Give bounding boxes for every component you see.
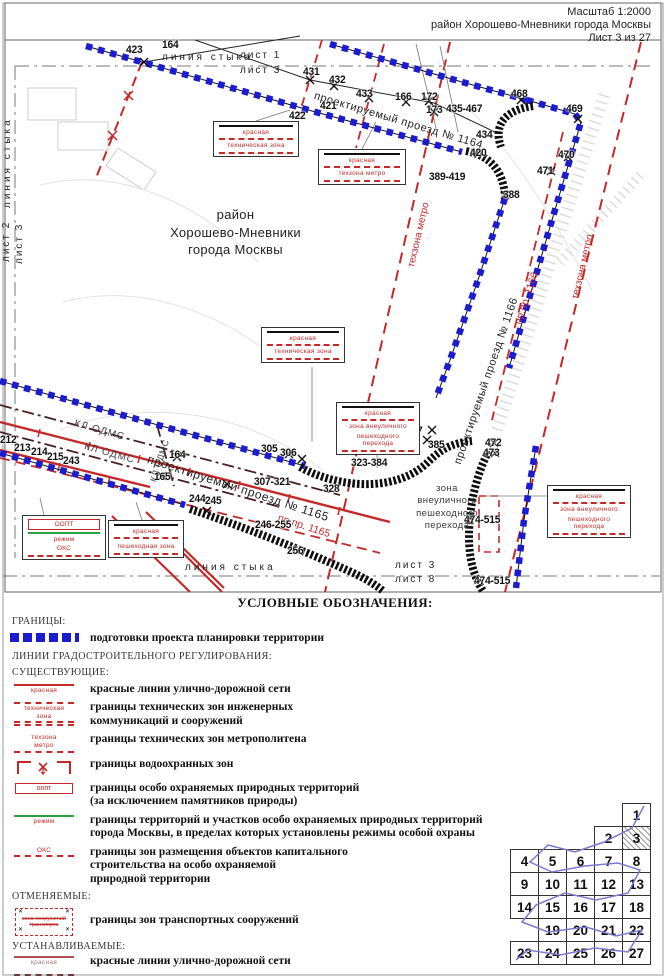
- red-line-sample: [219, 125, 293, 127]
- kl-odms-label-1: КЛ ОДМС: [73, 418, 126, 443]
- street-label-1165: проектируемый проезд № 1165: [146, 452, 331, 524]
- point-label: 215: [47, 451, 64, 463]
- point-label: 245: [205, 495, 222, 507]
- grid-cell: 1: [622, 803, 651, 827]
- legend-item-metro-zones: техзона метро границы технических зон ме…: [12, 732, 660, 752]
- rezhim-line-sample: [28, 532, 100, 534]
- legend-item-underpass-zones: зона внеуличного пешеходного перехода гр…: [12, 972, 660, 978]
- point-label: 431: [303, 66, 320, 78]
- point-label: 243: [63, 455, 80, 467]
- grid-cell: 18: [622, 895, 651, 919]
- oopt-boundary-sample: ООПТ: [28, 519, 100, 530]
- point-label: 388: [503, 189, 520, 201]
- point-label: 173: [426, 104, 443, 116]
- grid-cell: 2: [594, 826, 623, 850]
- grid-cell: 19: [538, 918, 567, 942]
- grid-cell: 17: [594, 895, 623, 919]
- grid-cell: 14: [510, 895, 539, 919]
- water-zone-sample-icon: [15, 759, 73, 777]
- legend-item-rezhim: режим границы территорий и участков особ…: [12, 813, 660, 841]
- callout-metro-zone: красная техзона метро: [318, 149, 406, 185]
- callout-tech-zone-1: красная техническая зона: [213, 121, 299, 157]
- point-label: 165: [154, 471, 171, 483]
- point-label: 306: [280, 447, 297, 459]
- grid-cell: 6: [566, 849, 595, 873]
- legend-section-existing: СУЩЕСТВУЮЩИЕ:: [12, 667, 660, 678]
- point-label: 323-384: [351, 457, 387, 469]
- point-label: 421: [320, 100, 337, 112]
- grid-cell: 12: [594, 872, 623, 896]
- point-label: 473: [483, 447, 500, 459]
- header: Масштаб 1:2000 район Хорошево-Мневники г…: [5, 3, 659, 45]
- sheet-label-top-3: лист 3: [240, 65, 281, 76]
- point-label: 420: [470, 147, 487, 159]
- grid-cell: 22: [622, 918, 651, 942]
- grid-cell: 8: [622, 849, 651, 873]
- point-label: 470: [558, 149, 575, 161]
- grid-cell: 24: [538, 941, 567, 965]
- point-label: 256: [287, 545, 304, 557]
- point-label: 474-515: [464, 514, 500, 526]
- grid-cell: 21: [594, 918, 623, 942]
- point-label: 471: [537, 165, 554, 177]
- point-label: 307-321: [254, 476, 290, 488]
- grid-cell: 20: [566, 918, 595, 942]
- point-label: 164: [162, 39, 179, 51]
- point-label: 469: [566, 103, 583, 115]
- grid-cell: 27: [622, 941, 651, 965]
- seam-line-label-left: линия стыка: [2, 117, 13, 208]
- blue-boundary-sample: [10, 633, 79, 642]
- legend-item-planning-boundary: подготовки проекта планировки территории: [12, 631, 660, 646]
- callout-oopt: ООПТ режим ОКС: [22, 515, 106, 560]
- legend-item-red-lines: красная красные линии улично-дорожной се…: [12, 682, 660, 697]
- metro-zone-label-right: техзона метро: [570, 233, 596, 300]
- point-label: 172: [421, 91, 438, 103]
- point-label: 435-467: [446, 103, 482, 115]
- grid-cell: 26: [594, 941, 623, 965]
- point-label: 214: [31, 446, 48, 458]
- grid-cell: 13: [622, 872, 651, 896]
- grid-cell: 15: [538, 895, 567, 919]
- legend-section-regulation: ЛИНИИ ГРАДОСТРОИТЕЛЬНОГО РЕГУЛИРОВАНИЯ:: [12, 651, 660, 662]
- point-label: 389-419: [429, 171, 465, 183]
- district-label: район Хорошево-Мневники города Москвы: [158, 206, 313, 259]
- point-label: 468: [511, 88, 528, 100]
- transport-zone-sample: ✕✕ зона сооружений транспорта ✕✕: [15, 908, 73, 935]
- grid-cell: 10: [538, 872, 567, 896]
- sheet-label-bottom-8: лист 8: [395, 574, 436, 585]
- grid-cell: 7: [594, 849, 623, 873]
- point-label: 432: [329, 74, 346, 86]
- point-label: 423: [126, 44, 143, 56]
- point-label: 328: [323, 483, 340, 495]
- legend-item-tech-zones: техническая зона границы технических зон…: [12, 700, 660, 728]
- point-label: 164: [169, 449, 186, 461]
- header-sheet: Лист 3 из 27: [5, 32, 651, 45]
- grid-cell: 4: [510, 849, 539, 873]
- point-label: 474-515: [474, 575, 510, 587]
- point-label: 166: [395, 91, 412, 103]
- grid-cell: 25: [566, 941, 595, 965]
- grid-cell: 16: [566, 895, 595, 919]
- grid-cell: 23: [510, 941, 539, 965]
- callout-underpass-2: красная зона внеуличного пешеходного пер…: [547, 485, 631, 538]
- sheet-label-top-1: лист 1: [240, 50, 281, 61]
- sheet-label-bottom-3: лист 3: [395, 560, 436, 571]
- sheet-label-left-2: лист 2: [1, 221, 12, 262]
- point-label: 246-255: [255, 519, 291, 531]
- callout-ped-zone: красная пешеходная зона: [108, 520, 184, 558]
- point-label: 213: [14, 442, 31, 454]
- point-label: 433: [356, 88, 373, 100]
- callout-tech-zone-2: красная техническая зона: [261, 327, 345, 363]
- legend-title: УСЛОВНЫЕ ОБОЗНАЧЕНИЯ:: [10, 595, 660, 611]
- legend-section-borders: ГРАНИЦЫ:: [12, 616, 660, 627]
- header-scale: Масштаб 1:2000: [5, 6, 651, 19]
- header-district: район Хорошево-Мневники города Москвы: [5, 19, 651, 32]
- point-label: 305: [261, 443, 278, 455]
- point-label: 434: [476, 129, 493, 141]
- sheet-label-left-3: лист 3: [14, 223, 25, 264]
- red-line-sample: [14, 684, 74, 686]
- kl-odms-label-2: КЛ ОДМС: [83, 441, 136, 466]
- map-sheet-page: Масштаб 1:2000 район Хорошево-Мневники г…: [0, 0, 666, 978]
- callout-underpass-1: красная зона внеуличного пешеходного пер…: [336, 402, 420, 455]
- point-label: 385: [428, 439, 445, 451]
- grid-cell: 11: [566, 872, 595, 896]
- legend-item-water-zones: границы водоохранных зон: [12, 757, 660, 777]
- legend-item-oopt: оопт границы особо охраняемых природных …: [12, 781, 660, 809]
- grid-cell-current: 3: [622, 826, 651, 850]
- metro-zone-label-left: техзона метро: [406, 201, 432, 268]
- grid-cell: 9: [510, 872, 539, 896]
- green-line-sample: [14, 815, 74, 817]
- point-label: 244: [189, 493, 206, 505]
- seam-line-label-bottom: линия стыка: [185, 562, 276, 573]
- grid-cell: 5: [538, 849, 567, 873]
